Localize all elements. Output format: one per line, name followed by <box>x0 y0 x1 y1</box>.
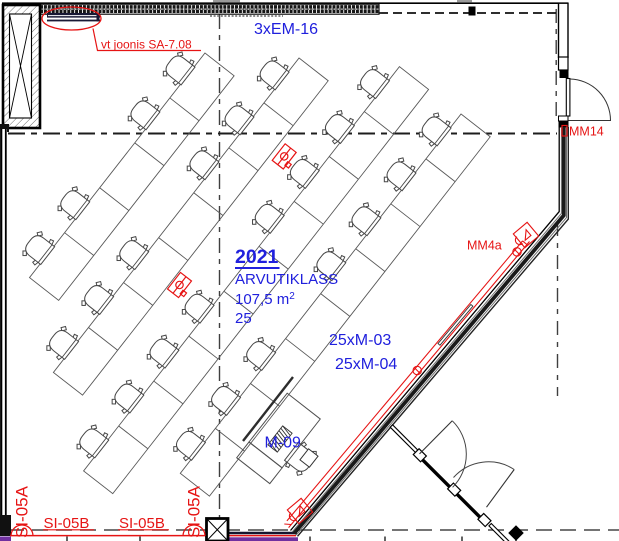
svg-text:2021: 2021 <box>235 246 279 268</box>
svg-text:vt joonis SA-7.08: vt joonis SA-7.08 <box>101 38 192 52</box>
svg-text:M-09: M-09 <box>265 435 302 452</box>
svg-text:SI-05A: SI-05A <box>13 485 32 538</box>
svg-text:25xM-04: 25xM-04 <box>335 356 397 373</box>
svg-text:SI-05A: SI-05A <box>185 485 204 538</box>
svg-text:MM14: MM14 <box>569 125 604 139</box>
svg-text:ARVUTIKLASS: ARVUTIKLASS <box>235 271 338 288</box>
svg-text:25xM-03: 25xM-03 <box>329 332 391 349</box>
svg-text:MM4a: MM4a <box>467 239 502 253</box>
svg-text:107,5 m2: 107,5 m2 <box>235 291 295 308</box>
svg-text:3xEM-16: 3xEM-16 <box>254 21 318 38</box>
svg-text:25: 25 <box>235 310 252 327</box>
